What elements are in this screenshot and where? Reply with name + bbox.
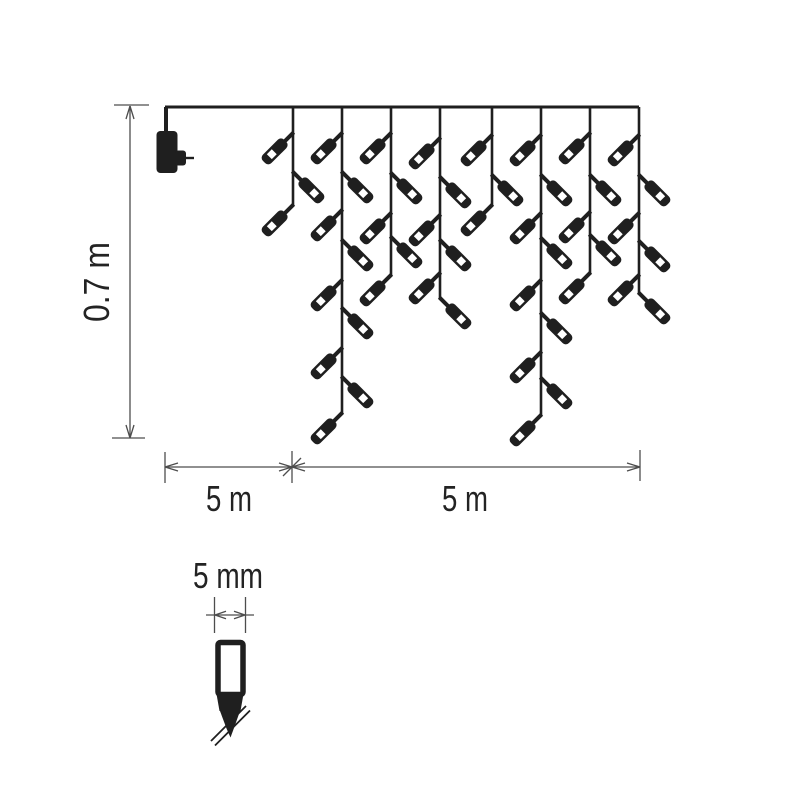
string-lights <box>157 107 673 448</box>
lead-length-label: 5 m <box>206 478 252 519</box>
plug-head <box>175 151 186 166</box>
led-bulb-icon <box>358 270 396 308</box>
led-bulb-icon <box>309 408 347 446</box>
height-label: 0.7 m <box>76 242 117 322</box>
led-socket <box>217 694 244 711</box>
plug-body <box>157 131 178 173</box>
lit-length-label: 5 m <box>442 478 488 519</box>
product-dimension-diagram: 0.7 m 5 m 5 m 5 mm <box>0 0 800 800</box>
led-bulb-icon <box>634 288 672 326</box>
bulb-detail: 5 mm <box>193 555 263 746</box>
light-drops <box>260 107 672 448</box>
dim-length: 5 m 5 m <box>165 450 640 519</box>
led-bulb-icon <box>435 293 473 331</box>
led-bulb-icon <box>260 200 298 238</box>
led-tube <box>218 643 243 695</box>
bulb-diameter-label: 5 mm <box>193 555 263 596</box>
led-bulb-icon <box>508 410 546 448</box>
diagram-canvas: 0.7 m 5 m 5 m 5 mm <box>0 0 800 800</box>
dim-height: 0.7 m <box>76 105 149 438</box>
led-bulb-icon <box>557 268 595 306</box>
power-plug <box>157 107 195 173</box>
